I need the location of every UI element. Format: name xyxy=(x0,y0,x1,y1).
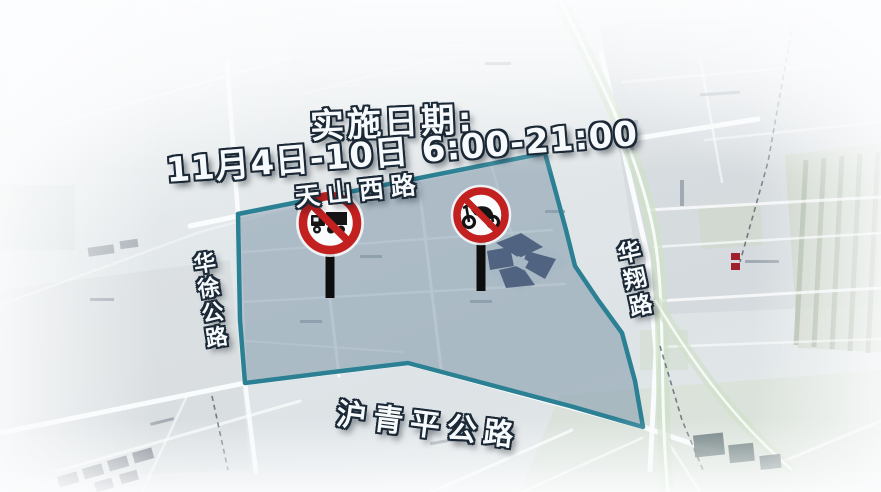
sign-post xyxy=(477,241,486,291)
map-canvas: 实施日期: 11月4日-10日 6:00-21:00 天山西路 华徐公路 华翔路… xyxy=(0,0,881,492)
sign-post xyxy=(326,251,335,298)
